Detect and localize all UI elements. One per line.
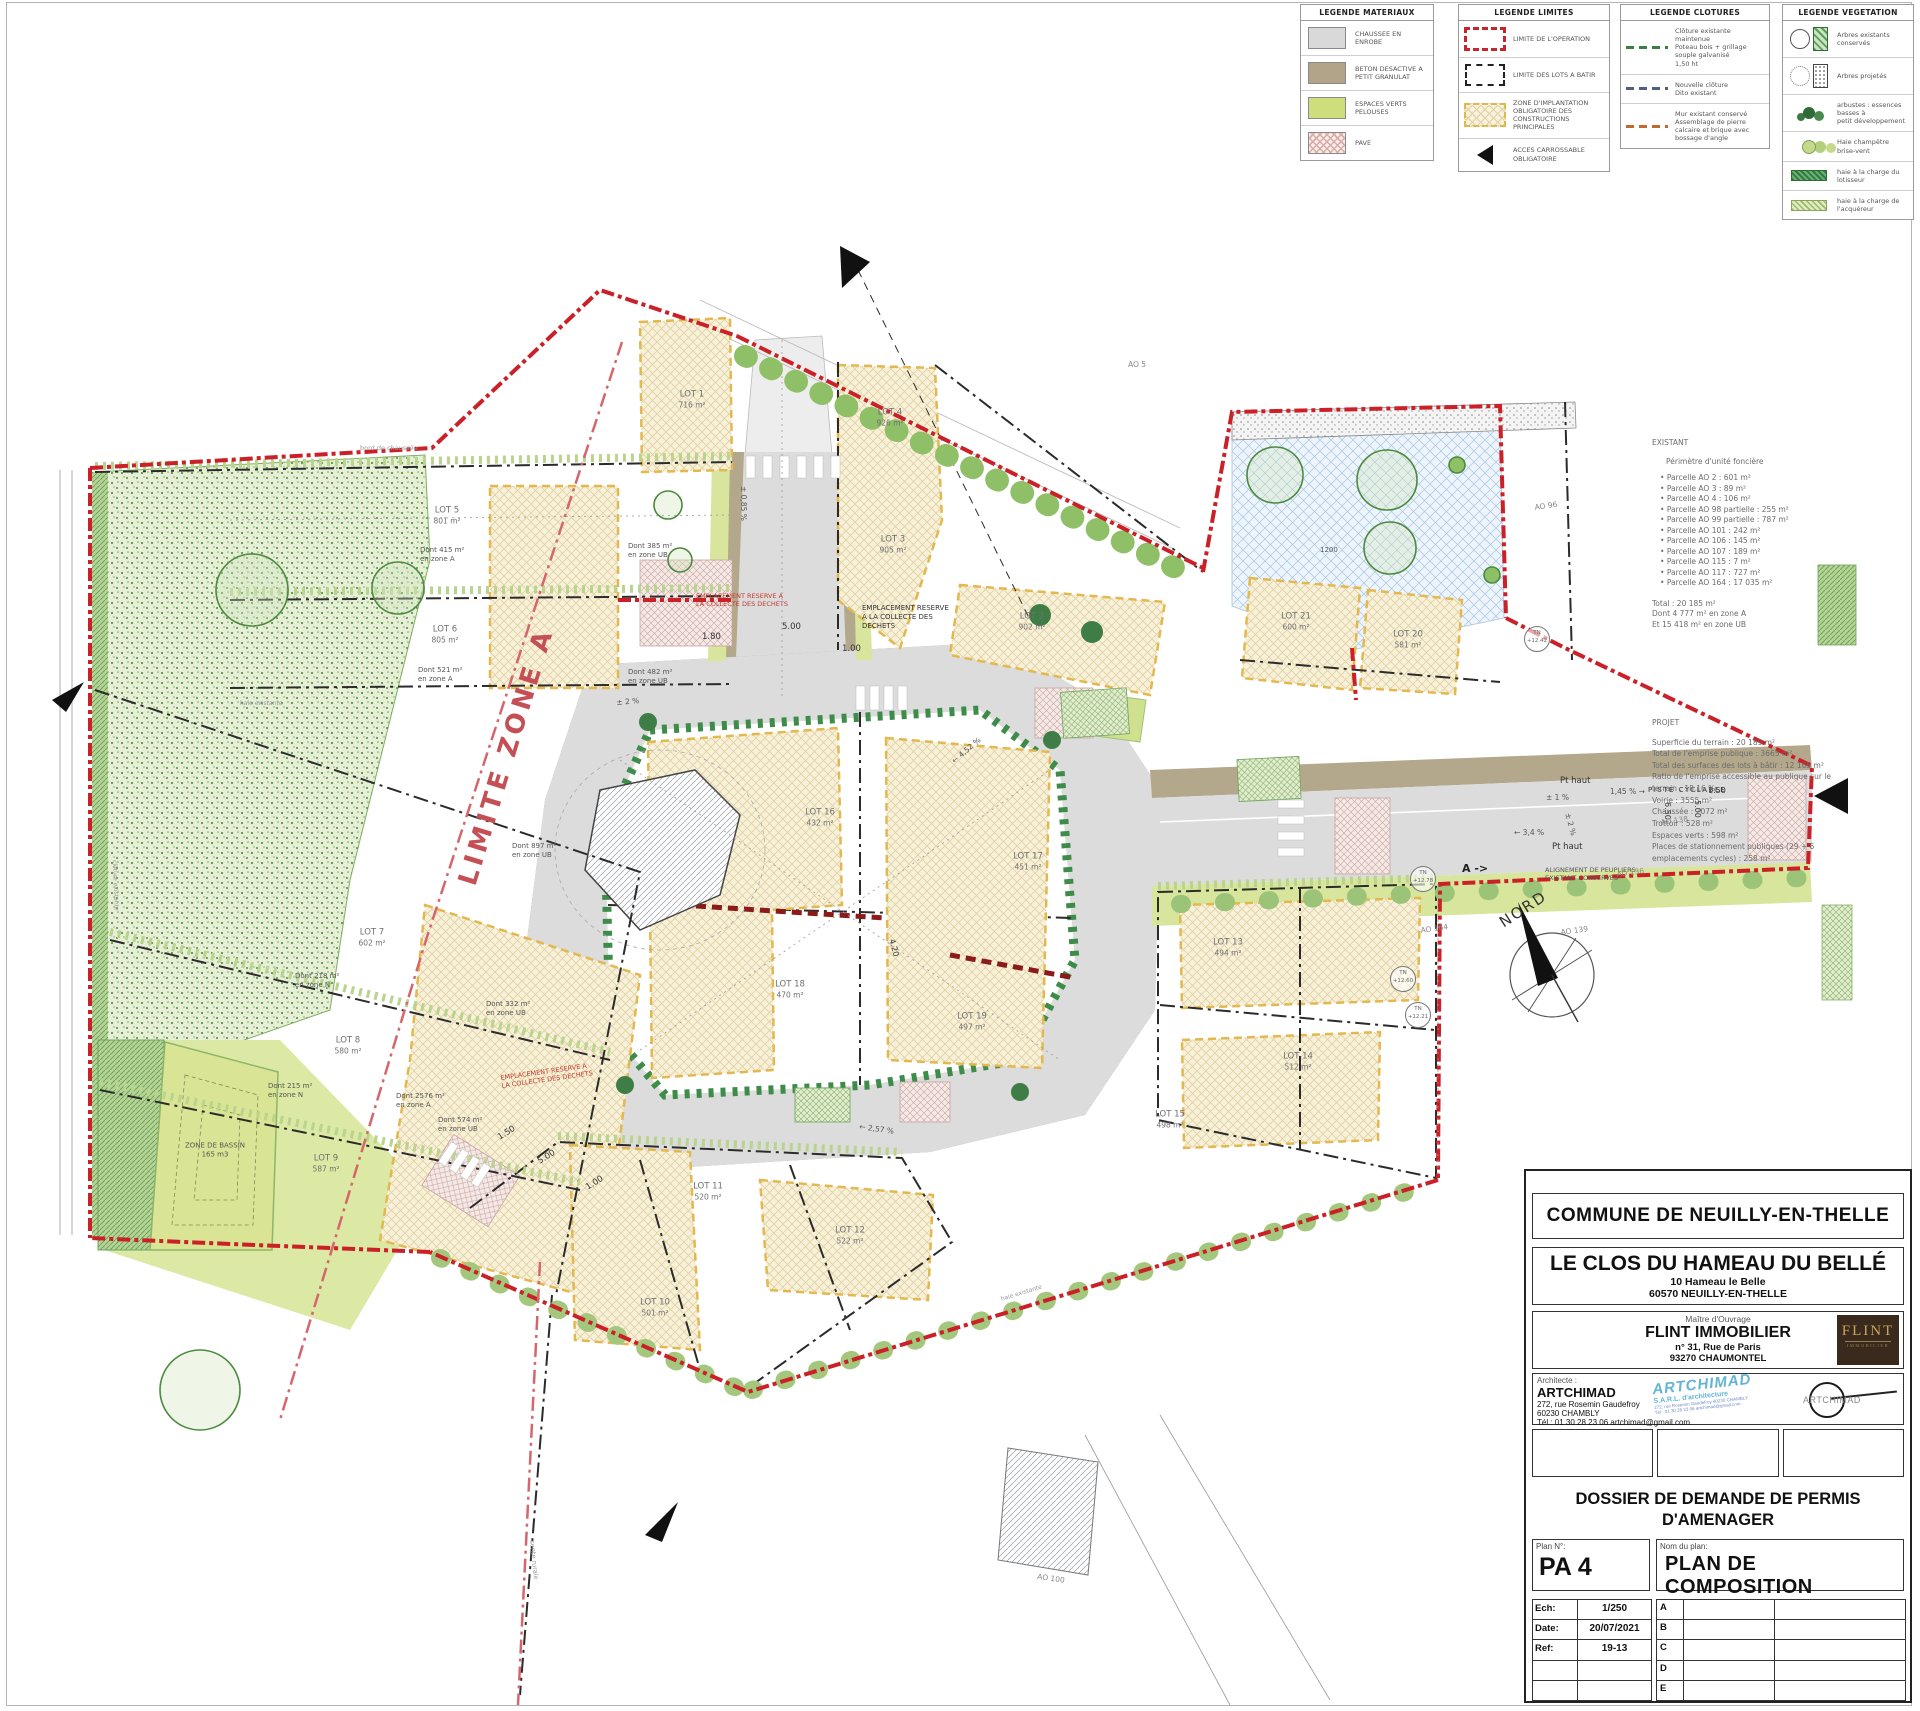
- revision-cell: [1684, 1600, 1775, 1619]
- legend-item-label: CHAUSSEE EN ENROBE: [1355, 30, 1429, 46]
- legend-item: LIMITE DES LOTS A BATIR: [1459, 58, 1609, 93]
- bassin-label: ZONE DE BASSIN 165 m3: [185, 1141, 245, 1159]
- lot-area: 501 m²: [640, 1309, 670, 1319]
- lot-label-3: LOT 3905 m²: [879, 535, 906, 556]
- dont-zone-label-1: Dont 415 m² en zone A: [420, 546, 464, 564]
- revision-cell: [1775, 1681, 1905, 1700]
- scale-key: Ech:: [1533, 1600, 1578, 1619]
- dont-zone-label-2: Dont 521 m² en zone A: [418, 666, 462, 684]
- revision-cell: [1775, 1620, 1905, 1639]
- legend-item: haie à la charge du lotisseur: [1783, 162, 1913, 191]
- architect-phone: Tél : 01 30 28 23 06 artchimad@gmail.com: [1537, 1418, 1899, 1427]
- scale-value: 1/250: [1578, 1600, 1651, 1619]
- lot-name: LOT 12: [835, 1226, 865, 1236]
- lot-area: 600 m²: [1281, 623, 1311, 633]
- revision-cell: [1684, 1661, 1775, 1680]
- lot-name: LOT 21: [1281, 612, 1311, 622]
- legend-item: PAVE: [1301, 126, 1433, 160]
- haie-acquereur-swatch: [1787, 200, 1831, 211]
- zone-implantation-swatch: [1463, 103, 1507, 127]
- lot-name: LOT 20: [1393, 630, 1423, 640]
- lot-area: 497 m²: [957, 1023, 987, 1033]
- pave-swatch: [1305, 132, 1349, 154]
- plan-number-box: Plan N°: PA 4: [1532, 1539, 1650, 1591]
- revision-row: D: [1657, 1661, 1905, 1681]
- lot-name: LOT 2: [1020, 612, 1044, 622]
- lot-label-1: LOT 1716 m²: [678, 390, 705, 411]
- tn-marker-2: TN+12.21: [1405, 1002, 1431, 1028]
- legend-item: CHAUSSEE EN ENROBE: [1301, 21, 1433, 56]
- lot-name: LOT 10: [640, 1298, 670, 1308]
- legend-item-label: Arbres existants conservés: [1837, 31, 1909, 47]
- arbustes-icon: [1787, 107, 1831, 119]
- legend-materiaux: LEGENDE MATERIAUX CHAUSSEE EN ENROBE BET…: [1300, 4, 1434, 161]
- tn-marker-1: TN+12.60: [1390, 966, 1416, 992]
- dont-zone-label-0: Dont 2576 m² en zone A: [396, 1092, 445, 1110]
- lot-name: LOT 18: [775, 980, 805, 990]
- scale-row: Ref:19-13: [1533, 1640, 1651, 1660]
- revision-letter: B: [1657, 1620, 1684, 1639]
- revision-letter: D: [1657, 1661, 1684, 1680]
- dechets-label-black: EMPLACEMENT RESERVE A LA COLLECTE DES DE…: [862, 604, 949, 630]
- dont-zone-label-3: Dont 218 m² en zone N: [295, 972, 339, 990]
- revision-letter: C: [1657, 1640, 1684, 1659]
- legend-item-label: PAVE: [1355, 139, 1371, 147]
- lot-label-16: LOT 16432 m²: [805, 808, 835, 829]
- lot-label-2: LOT 2902 m²: [1018, 612, 1045, 633]
- lot-name: LOT 3: [881, 535, 905, 545]
- legend-vegetation: LEGENDE VEGETATION Arbres existants cons…: [1782, 4, 1914, 220]
- scale-key: [1533, 1681, 1578, 1700]
- lot-area: 522 m²: [835, 1237, 865, 1247]
- revision-cell: [1775, 1661, 1905, 1680]
- legend-item: haie à la charge de l'acquéreur: [1783, 191, 1913, 219]
- legend-vegetation-title: LEGENDE VEGETATION: [1783, 5, 1913, 21]
- tn-label: TN: [1399, 970, 1406, 976]
- lot-name: LOT 9: [314, 1154, 338, 1164]
- dim-label-10: 1200: [1320, 546, 1338, 555]
- legend-item: BETON DESACTIVE A PETIT GRANULAT: [1301, 56, 1433, 91]
- lot-name: LOT 11: [693, 1182, 723, 1192]
- lot-name: LOT 16: [805, 808, 835, 818]
- artchimad-logo: ARTCHIMAD: [1801, 1382, 1901, 1418]
- revision-row: E: [1657, 1681, 1905, 1700]
- legend-item-label: ZONE D'IMPLANTATION OBLIGATOIRE DES CONS…: [1513, 99, 1588, 132]
- legend-clotures-title: LEGENDE CLOTURES: [1621, 5, 1769, 21]
- lot-name: LOT 8: [336, 1036, 360, 1046]
- legend-item: ZONE D'IMPLANTATION OBLIGATOIRE DES CONS…: [1459, 93, 1609, 139]
- lot-label-5: LOT 5801 m²: [433, 506, 460, 527]
- lot-label-6: LOT 6805 m²: [431, 625, 458, 646]
- lot-area: 498 m²: [1155, 1121, 1185, 1131]
- plan-number-label: Plan N°:: [1533, 1540, 1649, 1553]
- dim-label-0: 5.00: [782, 622, 801, 633]
- lot-label-18: LOT 18470 m²: [775, 980, 805, 1001]
- parcelles-list: Parcelle AO 2 : 601 m²Parcelle AO 3 : 89…: [1660, 473, 1848, 589]
- revision-cell: [1684, 1681, 1775, 1700]
- dont-zone-label-8: Dont 332 m² en zone UB: [486, 1000, 530, 1018]
- lot-name: LOT 13: [1213, 938, 1243, 948]
- dim-label-2: 1.80: [702, 632, 721, 643]
- visa-boxes: [1532, 1429, 1904, 1477]
- artchimad-logo-text: ARTCHIMAD: [1803, 1392, 1861, 1406]
- scale-row: Ech:1/250: [1533, 1600, 1651, 1620]
- lot-label-10: LOT 10501 m²: [640, 1298, 670, 1319]
- bord-chaussee-label: bord de chaussée: [360, 444, 418, 452]
- scale-value: [1578, 1661, 1651, 1680]
- slope-label-0: ± 0,85 %: [739, 486, 748, 521]
- legend-item-label: LIMITE DES LOTS A BATIR: [1513, 71, 1596, 79]
- slope-label-4: 1,45 % →: [1610, 787, 1645, 796]
- lot-name: LOT 17: [1013, 852, 1043, 862]
- legend-limites-title: LEGENDE LIMITES: [1459, 5, 1609, 21]
- project-title: LE CLOS DU HAMEAU DU BELLÉ: [1533, 1252, 1903, 1276]
- cloture-existante-swatch: [1625, 46, 1669, 49]
- projet-title: PROJET: [1652, 718, 1848, 729]
- existant-subtitle: Périmètre d'unité foncière: [1666, 457, 1848, 468]
- legend-item-label: Nouvelle clôture Dito existant: [1675, 81, 1728, 97]
- lot-area: 602 m²: [358, 939, 385, 949]
- scale-table: Ech:1/250 Date:20/07/2021 Ref:19-13: [1532, 1599, 1652, 1701]
- legend-materiaux-title: LEGENDE MATERIAUX: [1301, 5, 1433, 21]
- section-a-label: A ->: [1462, 862, 1488, 876]
- legend-item: arbustes : essences basses à petit dével…: [1783, 95, 1913, 132]
- legend-item-label: haie à la charge de l'acquéreur: [1837, 197, 1909, 213]
- haie-existante-label-2: haie existante: [240, 700, 283, 708]
- lot-name: LOT 7: [360, 928, 384, 938]
- lot-label-21: LOT 21600 m²: [1281, 612, 1311, 633]
- parcel-ref-0: AO 5: [1128, 360, 1146, 369]
- tn-value: +12.78: [1413, 878, 1433, 884]
- commune-title: COMMUNE DE NEUILLY-EN-THELLE: [1532, 1193, 1904, 1239]
- legend-item-label: haie à la charge du lotisseur: [1837, 168, 1909, 184]
- projet-lines: Superficie du terrain : 20 189 m²Total d…: [1652, 737, 1848, 865]
- dont-zone-label-9: Dont 574 m² en zone UB: [438, 1116, 482, 1134]
- lot-area: 801 m²: [433, 517, 460, 527]
- flint-logo-subtext: IMMOBILIER: [1845, 1341, 1891, 1348]
- legend-item-label: Clôture existante maintenue Poteau bois …: [1675, 27, 1765, 68]
- lot-area: 494 m²: [1213, 949, 1243, 959]
- pt-haut-label-2: Pt haut: [1552, 842, 1582, 853]
- dont-zone-label-5: Dont 897 m² en zone UB: [512, 842, 556, 860]
- visa-box-2: [1657, 1429, 1778, 1477]
- lot-area: 451 m²: [1013, 863, 1043, 873]
- scale-key: Ref:: [1533, 1640, 1578, 1659]
- revision-cell: [1775, 1600, 1905, 1619]
- legend-item: Arbres existants conservés: [1783, 21, 1913, 58]
- dechets-label-red-1: EMPLACEMENT RESERVE A LA COLLECTE DES DE…: [696, 592, 788, 608]
- lot-name: LOT 15: [1155, 1110, 1185, 1120]
- lot-area: 716 m²: [678, 401, 705, 411]
- tn-marker-3: TN+12.42: [1524, 626, 1550, 652]
- revision-cell: [1684, 1620, 1775, 1639]
- totaux-list: Total : 20 185 m²Dont 4 777 m² en zone A…: [1652, 599, 1848, 631]
- beton-swatch: [1305, 62, 1349, 84]
- lot-label-13: LOT 13494 m²: [1213, 938, 1243, 959]
- dont-zone-label-7: Dont 482 m² en zone UB: [628, 668, 672, 686]
- lot-label-14: LOT 14512 m²: [1283, 1052, 1313, 1073]
- nouvelle-cloture-swatch: [1625, 87, 1669, 90]
- revision-cell: [1775, 1640, 1905, 1659]
- mur-existant-swatch: [1625, 125, 1669, 128]
- legend-item-label: Arbres projetés: [1837, 72, 1887, 80]
- lot-name: LOT 14: [1283, 1052, 1313, 1062]
- plan-number-value: PA 4: [1533, 1553, 1649, 1582]
- project-address-2: 60570 NEUILLY-EN-THELLE: [1533, 1288, 1903, 1300]
- scale-row: [1533, 1661, 1651, 1681]
- limite-operation-swatch: [1463, 27, 1507, 51]
- legend-item: Haie champêtre brise-vent: [1783, 132, 1913, 161]
- scale-row: Date:20/07/2021: [1533, 1620, 1651, 1640]
- legend-item-label: Mur existant conservé Assemblage de pier…: [1675, 110, 1749, 143]
- lot-area: 902 m²: [1018, 623, 1045, 633]
- lot-area: 905 m²: [879, 546, 906, 556]
- arbre-projete-icon: [1787, 64, 1831, 88]
- lot-label-8: LOT 8580 m²: [334, 1036, 361, 1057]
- lot-label-11: LOT 11520 m²: [693, 1182, 723, 1203]
- tn-label: TN: [1533, 630, 1540, 636]
- legend-item: ESPACES VERTS PELOUSES: [1301, 91, 1433, 126]
- tn-marker-0: TN+12.78: [1410, 866, 1436, 892]
- haie-lotisseur-swatch: [1787, 170, 1831, 181]
- artchimad-logo-main: ARTCHI: [1803, 1395, 1839, 1405]
- legend-item-label: Haie champêtre brise-vent: [1837, 138, 1909, 154]
- espaces-verts-swatch: [1305, 97, 1349, 119]
- legend-item: LIMITE DE L'OPERATION: [1459, 21, 1609, 58]
- lot-area: 520 m²: [693, 1193, 723, 1203]
- lot-name: LOT 19: [957, 1012, 987, 1022]
- plan-name-label: Nom du plan:: [1657, 1540, 1903, 1553]
- legend-item: ACCES CARROSSABLE OBLIGATOIRE: [1459, 139, 1609, 171]
- revision-letter: A: [1657, 1600, 1684, 1619]
- project-block: LE CLOS DU HAMEAU DU BELLÉ 10 Hameau le …: [1532, 1247, 1904, 1305]
- scale-key: [1533, 1661, 1578, 1680]
- scale-value: [1578, 1681, 1651, 1700]
- lot-label-17: LOT 17451 m²: [1013, 852, 1043, 873]
- revision-row: B: [1657, 1620, 1905, 1640]
- tn-value: +12.60: [1393, 978, 1413, 984]
- legend-item: Nouvelle clôture Dito existant: [1621, 75, 1769, 104]
- lot-area: 926 m²: [876, 419, 903, 429]
- legend-item: Clôture existante maintenue Poteau bois …: [1621, 21, 1769, 75]
- lot-label-19: LOT 19497 m²: [957, 1012, 987, 1033]
- revision-table: A B C D E: [1656, 1599, 1906, 1701]
- limite-lots-swatch: [1463, 64, 1507, 86]
- tn-label: TN: [1414, 1006, 1421, 1012]
- maitre-ouvrage-block: Maître d'Ouvrage FLINT IMMOBILIER n° 31,…: [1532, 1311, 1904, 1369]
- visa-box-3: [1783, 1429, 1904, 1477]
- dont-zone-label-4: Dont 215 m² en zone N: [268, 1082, 312, 1100]
- lot-label-9: LOT 9587 m²: [312, 1154, 339, 1175]
- tn-value: +12.21: [1408, 1014, 1428, 1020]
- lot-area: 432 m²: [805, 819, 835, 829]
- legend-item-label: ACCES CARROSSABLE OBLIGATOIRE: [1513, 146, 1585, 162]
- lot-area: 580 m²: [334, 1047, 361, 1057]
- legend-clotures: LEGENDE CLOTURES Clôture existante maint…: [1620, 4, 1770, 149]
- flint-logo-text: FLINT: [1837, 1323, 1899, 1340]
- lot-area: 581 m²: [1393, 641, 1423, 651]
- flint-logo: FLINT IMMOBILIER: [1837, 1315, 1899, 1365]
- scale-value: 19-13: [1578, 1640, 1651, 1659]
- legend-item-label: ESPACES VERTS PELOUSES: [1355, 100, 1407, 116]
- legend-item-label: LIMITE DE L'OPERATION: [1513, 35, 1590, 43]
- project-address-1: 10 Hameau le Belle: [1533, 1276, 1903, 1288]
- lot-area: 805 m²: [431, 636, 458, 646]
- scale-key: Date:: [1533, 1620, 1578, 1639]
- slope-label-2: ± 1 %: [1546, 793, 1569, 802]
- legend-item: Arbres projetés: [1783, 58, 1913, 95]
- legend-item: Mur existant conservé Assemblage de pier…: [1621, 104, 1769, 149]
- lot-name: LOT 1: [680, 390, 704, 400]
- scale-value: 20/07/2021: [1578, 1620, 1651, 1639]
- acces-carrossable-icon: [1463, 145, 1507, 165]
- scale-row: [1533, 1681, 1651, 1700]
- lot-name: LOT 4: [878, 408, 902, 418]
- plan-name-value: PLAN DE COMPOSITION: [1657, 1553, 1903, 1599]
- dim-label-1: 1.00: [842, 644, 861, 655]
- dossier-title: DOSSIER DE DEMANDE DE PERMIS D'AMENAGER: [1532, 1483, 1904, 1537]
- lot-label-12: LOT 12522 m²: [835, 1226, 865, 1247]
- pt-haut-label-1: Pt haut: [1560, 776, 1590, 787]
- visa-box-1: [1532, 1429, 1653, 1477]
- lot-area: 512 m²: [1283, 1063, 1313, 1073]
- green-strip-east-2: [1822, 905, 1852, 1000]
- chaussee-swatch: [1305, 27, 1349, 49]
- tn-value: +12.42: [1527, 638, 1547, 644]
- dont-zone-label-6: Dont 385 m² en zone UB: [628, 542, 672, 560]
- revision-row: C: [1657, 1640, 1905, 1660]
- artchimad-logo-suffix: MAD: [1839, 1395, 1861, 1405]
- tn-label: TN: [1419, 870, 1426, 876]
- lot-label-20: LOT 20581 m²: [1393, 630, 1423, 651]
- plan-name-box: Nom du plan: PLAN DE COMPOSITION: [1656, 1539, 1904, 1591]
- lot-label-15: LOT 15498 m²: [1155, 1110, 1185, 1131]
- lot-area: 470 m²: [775, 991, 805, 1001]
- legend-item-label: BETON DESACTIVE A PETIT GRANULAT: [1355, 65, 1423, 81]
- lot-label-4: LOT 4926 m²: [876, 408, 903, 429]
- revision-cell: [1684, 1640, 1775, 1659]
- haie-champetre-icon: [1787, 140, 1831, 154]
- revision-letter: E: [1657, 1681, 1684, 1700]
- surface-notes: EXISTANT Périmètre d'unité foncière Parc…: [1652, 438, 1848, 874]
- revision-row: A: [1657, 1600, 1905, 1620]
- lot-name: LOT 6: [433, 625, 457, 635]
- slope-label-5: ← 3,4 %: [1514, 828, 1544, 837]
- existant-title: EXISTANT: [1652, 438, 1848, 449]
- legend-limites: LEGENDE LIMITES LIMITE DE L'OPERATION LI…: [1458, 4, 1610, 172]
- arbre-existant-icon: [1787, 27, 1831, 51]
- lot-name: LOT 5: [435, 506, 459, 516]
- lot-area: 587 m²: [312, 1165, 339, 1175]
- slope-label-1: ± 2 %: [616, 696, 640, 707]
- lot-label-7: LOT 7602 m²: [358, 928, 385, 949]
- legend-item-label: arbustes : essences basses à petit dével…: [1837, 101, 1909, 125]
- title-block: COMMUNE DE NEUILLY-EN-THELLE LE CLOS DU …: [1524, 1169, 1912, 1703]
- architect-block: Architecte : ARTCHIMAD 272, rue Rosemin …: [1532, 1373, 1904, 1425]
